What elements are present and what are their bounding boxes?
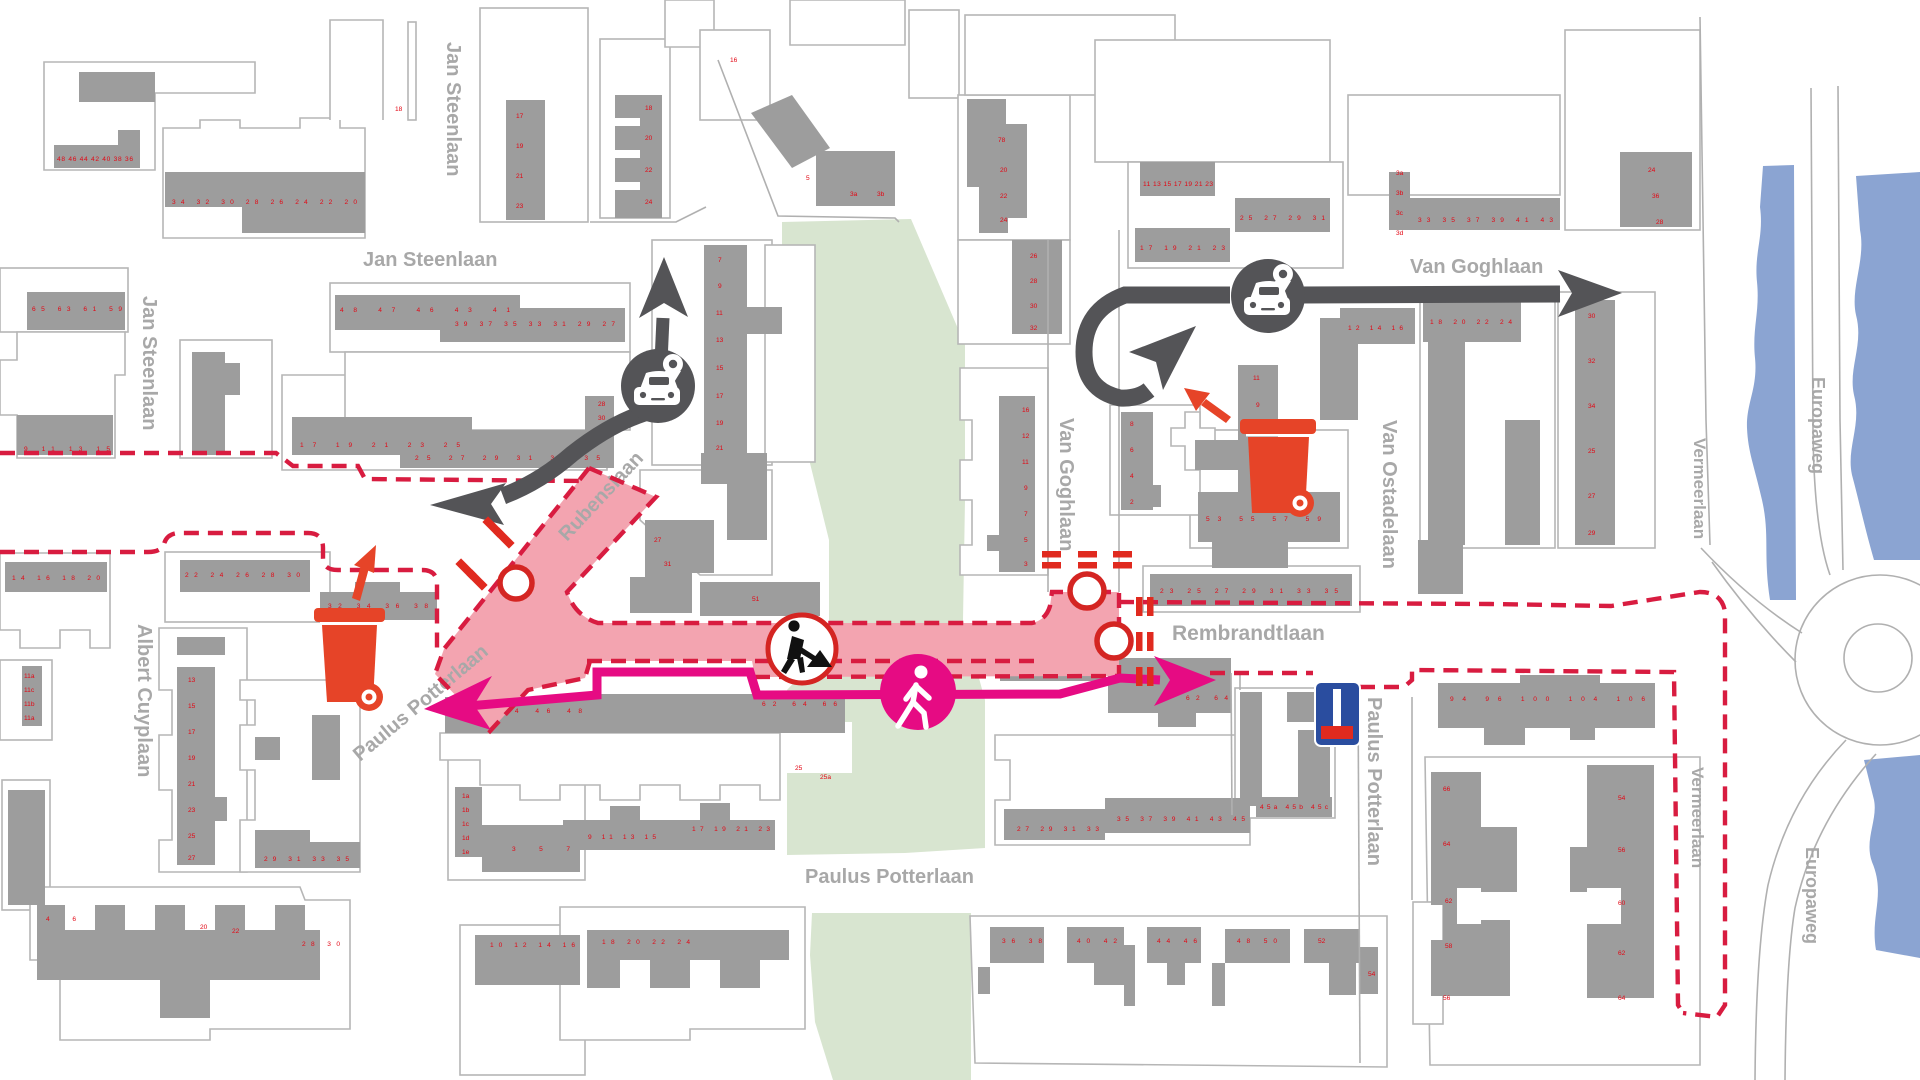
svg-text:1d: 1d	[462, 835, 470, 842]
svg-text:28: 28	[1656, 219, 1664, 226]
svg-text:13: 13	[716, 337, 724, 344]
svg-text:51: 51	[752, 596, 760, 603]
svg-text:26: 26	[1030, 253, 1038, 260]
svg-text:21: 21	[516, 173, 524, 180]
svg-text:15: 15	[188, 703, 196, 710]
svg-text:22: 22	[232, 928, 240, 935]
svg-text:5: 5	[806, 175, 810, 182]
svg-text:11: 11	[1253, 375, 1260, 382]
svg-text:12: 12	[1022, 433, 1030, 440]
svg-text:11: 11	[1022, 459, 1029, 466]
svg-text:3b: 3b	[1396, 190, 1404, 197]
svg-text:64: 64	[1443, 841, 1451, 848]
svg-text:Jan Steenlaan: Jan Steenlaan	[138, 296, 160, 431]
svg-text:25: 25	[1588, 448, 1596, 455]
svg-text:27: 27	[188, 855, 196, 862]
svg-text:8: 8	[1130, 421, 1134, 428]
svg-text:9: 9	[1024, 485, 1028, 492]
svg-text:7: 7	[1024, 511, 1028, 518]
svg-text:1c: 1c	[462, 821, 470, 828]
svg-text:16: 16	[1022, 407, 1030, 414]
svg-text:4: 4	[1130, 473, 1134, 480]
svg-text:16: 16	[730, 57, 738, 64]
svg-text:60: 60	[1618, 900, 1626, 907]
svg-text:Jan Steenlaan: Jan Steenlaan	[363, 249, 498, 271]
svg-text:56: 56	[1443, 995, 1451, 1002]
svg-text:27: 27	[1588, 493, 1596, 500]
svg-text:20: 20	[200, 924, 208, 931]
svg-text:1a: 1a	[462, 793, 470, 800]
svg-text:48 46 44 42 40 38 36: 48 46 44 42 40 38 36	[57, 156, 133, 163]
svg-text:30: 30	[1030, 303, 1038, 310]
svg-text:64: 64	[1618, 995, 1626, 1002]
svg-text:11a: 11a	[24, 673, 35, 680]
svg-text:Jan Steenlaan: Jan Steenlaan	[442, 42, 464, 177]
svg-text:21: 21	[188, 781, 196, 788]
svg-text:Europaweg: Europaweg	[1808, 377, 1828, 474]
svg-text:13: 13	[188, 677, 196, 684]
svg-text:Van Ostadelaan: Van Ostadelaan	[1378, 420, 1400, 569]
svg-text:3: 3	[1024, 561, 1028, 568]
svg-text:28: 28	[598, 401, 606, 408]
svg-text:18: 18	[395, 106, 403, 113]
svg-text:17: 17	[516, 113, 524, 120]
svg-text:9: 9	[1256, 402, 1260, 409]
svg-text:32: 32	[1030, 325, 1038, 332]
svg-text:31: 31	[664, 561, 672, 568]
svg-text:56: 56	[1618, 847, 1626, 854]
svg-text:20: 20	[1000, 167, 1008, 174]
svg-text:11b: 11b	[24, 701, 35, 708]
svg-text:52: 52	[1318, 938, 1326, 945]
svg-text:24: 24	[1648, 167, 1656, 174]
svg-text:3a: 3a	[1396, 170, 1404, 177]
svg-text:11a: 11a	[24, 715, 35, 722]
svg-text:30: 30	[598, 415, 606, 422]
svg-text:22: 22	[1000, 193, 1008, 200]
svg-text:17: 17	[188, 729, 196, 736]
svg-text:22: 22	[645, 167, 653, 174]
svg-text:6: 6	[1130, 447, 1134, 454]
svg-text:Vermeerlaan: Vermeerlaan	[1688, 767, 1707, 868]
svg-text:2: 2	[1130, 499, 1134, 506]
svg-text:45a 45b 45c: 45a 45b 45c	[1260, 804, 1329, 811]
svg-text:Van Goghlaan: Van Goghlaan	[1055, 418, 1077, 551]
svg-text:17: 17	[716, 393, 724, 400]
svg-text:3b: 3b	[877, 191, 885, 198]
svg-text:32: 32	[1588, 358, 1596, 365]
svg-text:Albert Cuyplaan: Albert Cuyplaan	[133, 624, 155, 777]
svg-text:20: 20	[645, 135, 653, 142]
svg-text:34: 34	[1588, 403, 1596, 410]
svg-text:5: 5	[1024, 537, 1028, 544]
svg-text:24: 24	[645, 199, 653, 206]
svg-text:Vermeerlaan: Vermeerlaan	[1690, 438, 1709, 539]
svg-text:1b: 1b	[462, 807, 470, 814]
svg-text:62: 62	[1445, 898, 1453, 905]
svg-text:Paulus Potterlaan: Paulus Potterlaan	[805, 866, 974, 888]
svg-text:24: 24	[1000, 217, 1008, 224]
svg-text:25a: 25a	[820, 774, 831, 781]
svg-text:9: 9	[718, 283, 722, 290]
svg-text:62: 62	[1618, 950, 1626, 957]
svg-text:23: 23	[188, 807, 196, 814]
svg-text:Paulus Potterlaan: Paulus Potterlaan	[1363, 697, 1385, 866]
svg-text:21: 21	[716, 445, 724, 452]
svg-text:3c: 3c	[1396, 210, 1404, 217]
svg-text:Rembrandtlaan: Rembrandtlaan	[1172, 622, 1325, 645]
svg-text:27: 27	[654, 537, 662, 544]
svg-text:34 32 30 28 26 24 22 20: 34 32 30 28 26 24 22 20	[172, 199, 357, 206]
svg-text:54: 54	[1368, 971, 1376, 978]
svg-text:3d: 3d	[1396, 230, 1404, 237]
svg-text:29: 29	[1588, 530, 1596, 537]
svg-text:66: 66	[1443, 786, 1451, 793]
svg-text:19: 19	[516, 143, 524, 150]
svg-text:11 13 15 17 19 21 23: 11 13 15 17 19 21 23	[1143, 181, 1213, 188]
svg-text:15: 15	[716, 365, 724, 372]
svg-text:54: 54	[1618, 795, 1626, 802]
svg-text:78: 78	[998, 137, 1006, 144]
svg-text:7: 7	[718, 257, 722, 264]
svg-text:1e: 1e	[462, 849, 470, 856]
svg-text:36: 36	[1652, 193, 1660, 200]
svg-text:25: 25	[188, 833, 196, 840]
svg-text:3a: 3a	[850, 191, 858, 198]
svg-text:58: 58	[1445, 943, 1453, 950]
svg-text:19: 19	[188, 755, 196, 762]
svg-text:19: 19	[716, 420, 724, 427]
svg-text:Van Goghlaan: Van Goghlaan	[1410, 256, 1543, 278]
svg-text:25: 25	[795, 765, 803, 772]
svg-text:30: 30	[1588, 313, 1596, 320]
svg-text:18: 18	[645, 105, 653, 112]
svg-text:Europaweg: Europaweg	[1802, 847, 1822, 944]
svg-text:11c: 11c	[24, 687, 35, 694]
svg-text:23: 23	[516, 203, 524, 210]
svg-text:11: 11	[716, 310, 723, 317]
svg-text:28: 28	[1030, 278, 1038, 285]
